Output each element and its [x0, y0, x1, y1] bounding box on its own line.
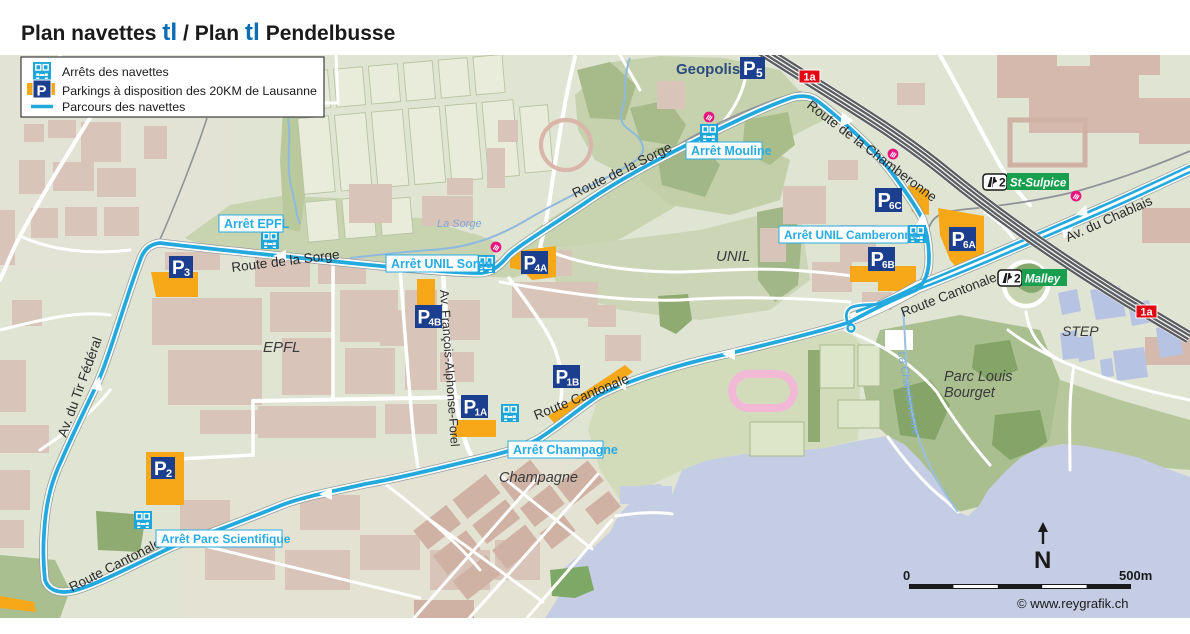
svg-text:6C: 6C	[889, 201, 902, 212]
svg-text:1a: 1a	[1140, 307, 1153, 319]
svg-text:1a: 1a	[803, 72, 816, 84]
svg-text:Geopolis: Geopolis	[676, 61, 740, 78]
svg-text:Parcours des navettes: Parcours des navettes	[62, 100, 185, 114]
svg-text:Arrêt Parc Scientifique: Arrêt Parc Scientifique	[161, 532, 291, 546]
svg-text:Arrêt EPFL: Arrêt EPFL	[224, 217, 290, 231]
svg-text:500m: 500m	[1119, 568, 1152, 583]
svg-text:© www.reygrafik.ch: © www.reygrafik.ch	[1017, 596, 1128, 611]
svg-text:4B: 4B	[429, 318, 442, 329]
svg-text:St-Sulpice: St-Sulpice	[1010, 178, 1067, 190]
svg-text:Arrêt UNIL Camberonne: Arrêt UNIL Camberonne	[784, 228, 919, 242]
svg-text:UNIL: UNIL	[716, 248, 750, 265]
svg-text:2: 2	[999, 176, 1006, 190]
svg-text:Arrêts des navettes: Arrêts des navettes	[62, 65, 169, 79]
svg-text:2: 2	[166, 468, 172, 480]
svg-text:4A: 4A	[535, 264, 548, 275]
svg-text:Arrêt UNIL Sorge: Arrêt UNIL Sorge	[391, 257, 492, 271]
svg-text:Bourget: Bourget	[944, 385, 996, 401]
svg-text:STEP: STEP	[1062, 323, 1099, 339]
svg-text:P: P	[37, 83, 47, 100]
svg-text:1B: 1B	[567, 378, 580, 389]
svg-text:Arrêt Champagne: Arrêt Champagne	[513, 443, 618, 457]
svg-text:3: 3	[184, 267, 190, 279]
svg-text:Plan navettes tl / Plan tl Pen: Plan navettes tl / Plan tl Pendelbusse	[21, 19, 395, 46]
svg-text:Parkings à disposition des 20K: Parkings à disposition des 20KM de Lausa…	[62, 84, 317, 98]
svg-text:P: P	[743, 59, 756, 80]
svg-text:Parc Louis: Parc Louis	[944, 369, 1013, 385]
svg-text:0: 0	[903, 568, 910, 583]
svg-text:N: N	[1034, 547, 1051, 574]
svg-text:1A: 1A	[475, 408, 488, 419]
svg-text:EPFL: EPFL	[263, 339, 301, 356]
svg-text:Champagne: Champagne	[499, 470, 578, 486]
svg-text:2: 2	[1014, 272, 1021, 286]
svg-text:La Sorge: La Sorge	[437, 218, 482, 230]
svg-text:6B: 6B	[882, 260, 895, 271]
svg-text:Arrêt Mouline: Arrêt Mouline	[691, 144, 772, 158]
svg-text:6A: 6A	[963, 240, 976, 251]
svg-text:Malley: Malley	[1025, 274, 1061, 286]
svg-text:5: 5	[756, 66, 763, 80]
